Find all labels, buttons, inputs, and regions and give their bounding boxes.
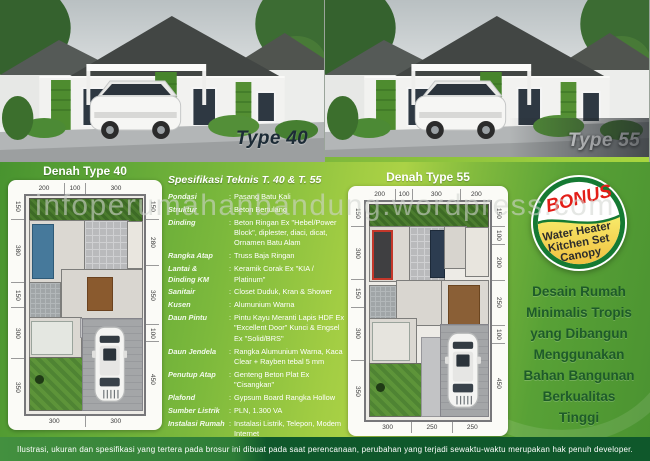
plan40-front-garden: [29, 198, 143, 222]
spec-row: Sanitair:Closet Duduk, Kran & Shower: [168, 287, 346, 297]
plan40-dining: [84, 220, 128, 270]
photo-caption-type55: Type 55: [568, 130, 640, 152]
floorplan-panel-type40: 200100300 150380150300350 15028035010045…: [8, 180, 162, 430]
spec-label: Sumber Listrik: [168, 406, 226, 416]
spec-colon: :: [226, 205, 234, 215]
spec-row: Kusen:Alumunium Warna: [168, 300, 346, 310]
bonus-badge: BONUS Water Heater Kitchen Set Canopy: [530, 174, 628, 272]
spec-value: Beton Ringan Ex "Hebel/Power Block", dip…: [234, 218, 346, 249]
dim-label: 150: [146, 194, 159, 219]
house-render-type55: [325, 0, 649, 162]
floorplan-title-type40: Denah Type 40: [8, 164, 162, 180]
dim-label: 450: [492, 343, 505, 422]
spec-colon: :: [226, 287, 234, 297]
plan55-drawing: [364, 200, 492, 422]
dim-label: 300: [412, 189, 460, 200]
dim-label: 150: [11, 282, 24, 308]
plan55-bed-red: [372, 230, 393, 280]
dim-label: 350: [146, 265, 159, 323]
dim-label: 200: [24, 183, 64, 194]
plan40-bathroom: [29, 282, 61, 319]
spec-row: Daun Pintu:Pintu Kayu Meranti Lapis HDF …: [168, 313, 346, 344]
promo-column: BONUS Water Heater Kitchen Set Canopy De…: [508, 166, 650, 428]
plan40-dims-left: 150380150300350: [11, 194, 24, 416]
plan55-bed-3: [372, 322, 410, 361]
spec-label: Penutup Atap: [168, 370, 226, 391]
dim-label: 100: [64, 183, 85, 194]
spec-label: Sanitair: [168, 287, 226, 297]
photo-type55: Type 55: [325, 0, 650, 162]
plan40-dims-top: 200100300: [24, 183, 146, 194]
spec-value: Alumunium Warna: [234, 300, 346, 310]
spec-value: Gypsum Board Rangka Hollow: [234, 393, 346, 403]
plan55-car: [445, 331, 481, 409]
plan40-dims-bottom: 300300: [24, 416, 146, 427]
spec-row: Struktur:Beton Bertulang: [168, 205, 346, 215]
dim-label: 300: [24, 416, 85, 427]
spec-title: Spesifikasi Teknis T. 40 & T. 55: [168, 174, 346, 186]
dim-label: 300: [351, 307, 364, 360]
dim-label: 350: [351, 360, 364, 422]
plan55-dims-bottom: 300250250: [364, 422, 492, 433]
floorplan-title-type55: Denah Type 55: [348, 170, 508, 186]
plan40-bed-blue: [32, 224, 54, 278]
spec-colon: :: [226, 251, 234, 261]
main-green-band: Denah Type 40 200100300 150380150300350 …: [0, 162, 650, 437]
floorplan-panel-type55: 200100300200 150300150300350 15010020025…: [348, 186, 508, 436]
spec-colon: :: [226, 192, 234, 202]
plan40-drawing: [24, 194, 146, 416]
plan40-rear-garden: [29, 357, 84, 410]
spec-value: Closet Duduk, Kran & Shower: [234, 287, 346, 297]
spec-colon: :: [226, 393, 234, 403]
spec-label: Lantai & Dinding KM: [168, 264, 226, 285]
brochure-page: Type 40 Type 55 Denah Type 40 200100300 …: [0, 0, 650, 461]
dim-label: 150: [492, 200, 505, 226]
dim-label: 300: [351, 226, 364, 279]
dim-label: 150: [351, 279, 364, 306]
plan55-dims-top: 200100300200: [364, 189, 492, 200]
dim-label: 100: [146, 324, 159, 341]
spec-colon: :: [226, 370, 234, 391]
spec-row: Penutup Atap:Genteng Beton Plat Ex "Cisa…: [168, 370, 346, 391]
spec-label: Dinding: [168, 218, 226, 249]
dim-label: 450: [146, 341, 159, 416]
dim-label: 300: [85, 416, 147, 427]
spec-table: Pondasi:Pasang Batu KaliStruktur:Beton B…: [168, 192, 346, 461]
spec-row: Sumber Listrik:PLN, 1.300 VA: [168, 406, 346, 416]
spec-label: Pondasi: [168, 192, 226, 202]
spec-value: Keramik Corak Ex "KIA / Platinum": [234, 264, 346, 285]
spec-label: Daun Jendela: [168, 347, 226, 368]
photo-type40: Type 40: [0, 0, 325, 162]
spec-value: Rangka Alumunium Warna, Kaca Clear + Ray…: [234, 347, 346, 368]
plan40-bed-2: [31, 321, 73, 355]
spec-colon: :: [226, 264, 234, 285]
dim-label: 280: [146, 219, 159, 266]
dim-label: 250: [492, 280, 505, 324]
spec-label: Plafond: [168, 393, 226, 403]
plan55-bathroom: [369, 285, 398, 320]
dim-label: 100: [492, 325, 505, 343]
dim-label: 250: [411, 422, 451, 433]
dim-label: 300: [364, 422, 411, 433]
plan40-dims-right: 150280350100450: [146, 194, 159, 416]
footer-disclaimer: Ilustrasi, ukuran dan spesifikasi yang t…: [0, 437, 650, 461]
spec-row: Daun Jendela:Rangka Alumunium Warna, Kac…: [168, 347, 346, 368]
dim-label: 200: [492, 244, 505, 280]
spec-value: Pintu Kayu Meranti Lapis HDF Ex "Excelle…: [234, 313, 346, 344]
spec-colon: :: [226, 406, 234, 416]
plan40-kitchen: [127, 221, 143, 269]
spec-value: PLN, 1.300 VA: [234, 406, 346, 416]
dim-label: 350: [11, 358, 24, 416]
spec-row: Plafond:Gypsum Board Rangka Hollow: [168, 393, 346, 403]
spec-label: Struktur: [168, 205, 226, 215]
plan55-walkway: [421, 337, 442, 416]
floorplan-block-type40: Denah Type 40 200100300 150380150300350 …: [8, 164, 162, 430]
plan55-kitchen: [465, 227, 489, 277]
dim-label: 300: [11, 307, 24, 357]
floorplan-block-type55: Denah Type 55 200100300200 1503001503003…: [348, 170, 508, 436]
spec-value: Truss Baja Ringan: [234, 251, 346, 261]
spec-value: Genteng Beton Plat Ex "Cisangkan": [234, 370, 346, 391]
spec-row: Pondasi:Pasang Batu Kali: [168, 192, 346, 202]
plan55-dims-right: 150100200250100450: [492, 200, 505, 422]
dim-label: 100: [492, 226, 505, 244]
plan55-dims-left: 150300150300350: [351, 200, 364, 422]
spec-row: Rangka Atap:Truss Baja Ringan: [168, 251, 346, 261]
spec-label: Daun Pintu: [168, 313, 226, 344]
spec-colon: :: [226, 300, 234, 310]
photo-caption-type40: Type 40: [236, 128, 308, 150]
dim-label: 380: [11, 219, 24, 282]
spec-value: Beton Bertulang: [234, 205, 346, 215]
spec-colon: :: [226, 313, 234, 344]
dim-label: 150: [351, 200, 364, 226]
promo-tagline: Desain Rumah Minimalis Tropis yang Diban…: [508, 282, 650, 428]
plan40-car: [92, 325, 127, 403]
plan55-utility: [444, 226, 467, 269]
plan55-bush: [376, 383, 385, 392]
spec-colon: :: [226, 218, 234, 249]
spec-label: Kusen: [168, 300, 226, 310]
dim-label: 100: [395, 189, 412, 200]
spec-section: Spesifikasi Teknis T. 40 & T. 55 Pondasi…: [168, 174, 346, 461]
dim-label: 200: [460, 189, 492, 200]
spec-colon: :: [226, 347, 234, 368]
spec-row: Lantai & Dinding KM:Keramik Corak Ex "KI…: [168, 264, 346, 285]
spec-label: Rangka Atap: [168, 251, 226, 261]
spec-row: Dinding:Beton Ringan Ex "Hebel/Power Blo…: [168, 218, 346, 249]
dim-label: 150: [11, 194, 24, 219]
spec-value: Pasang Batu Kali: [234, 192, 346, 202]
dim-label: 200: [364, 189, 395, 200]
plan55-front-garden: [369, 204, 489, 228]
plan40-table: [87, 277, 113, 312]
dim-label: 300: [85, 183, 146, 194]
dim-label: 250: [452, 422, 492, 433]
photo-row: Type 40 Type 55: [0, 0, 650, 162]
